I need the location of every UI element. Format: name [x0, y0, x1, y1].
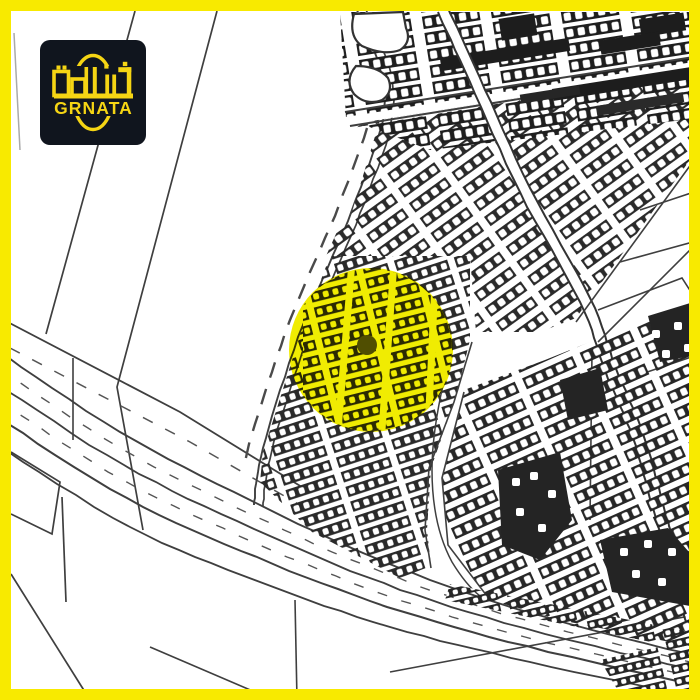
svg-text:GRNATA: GRNATA [54, 98, 133, 118]
